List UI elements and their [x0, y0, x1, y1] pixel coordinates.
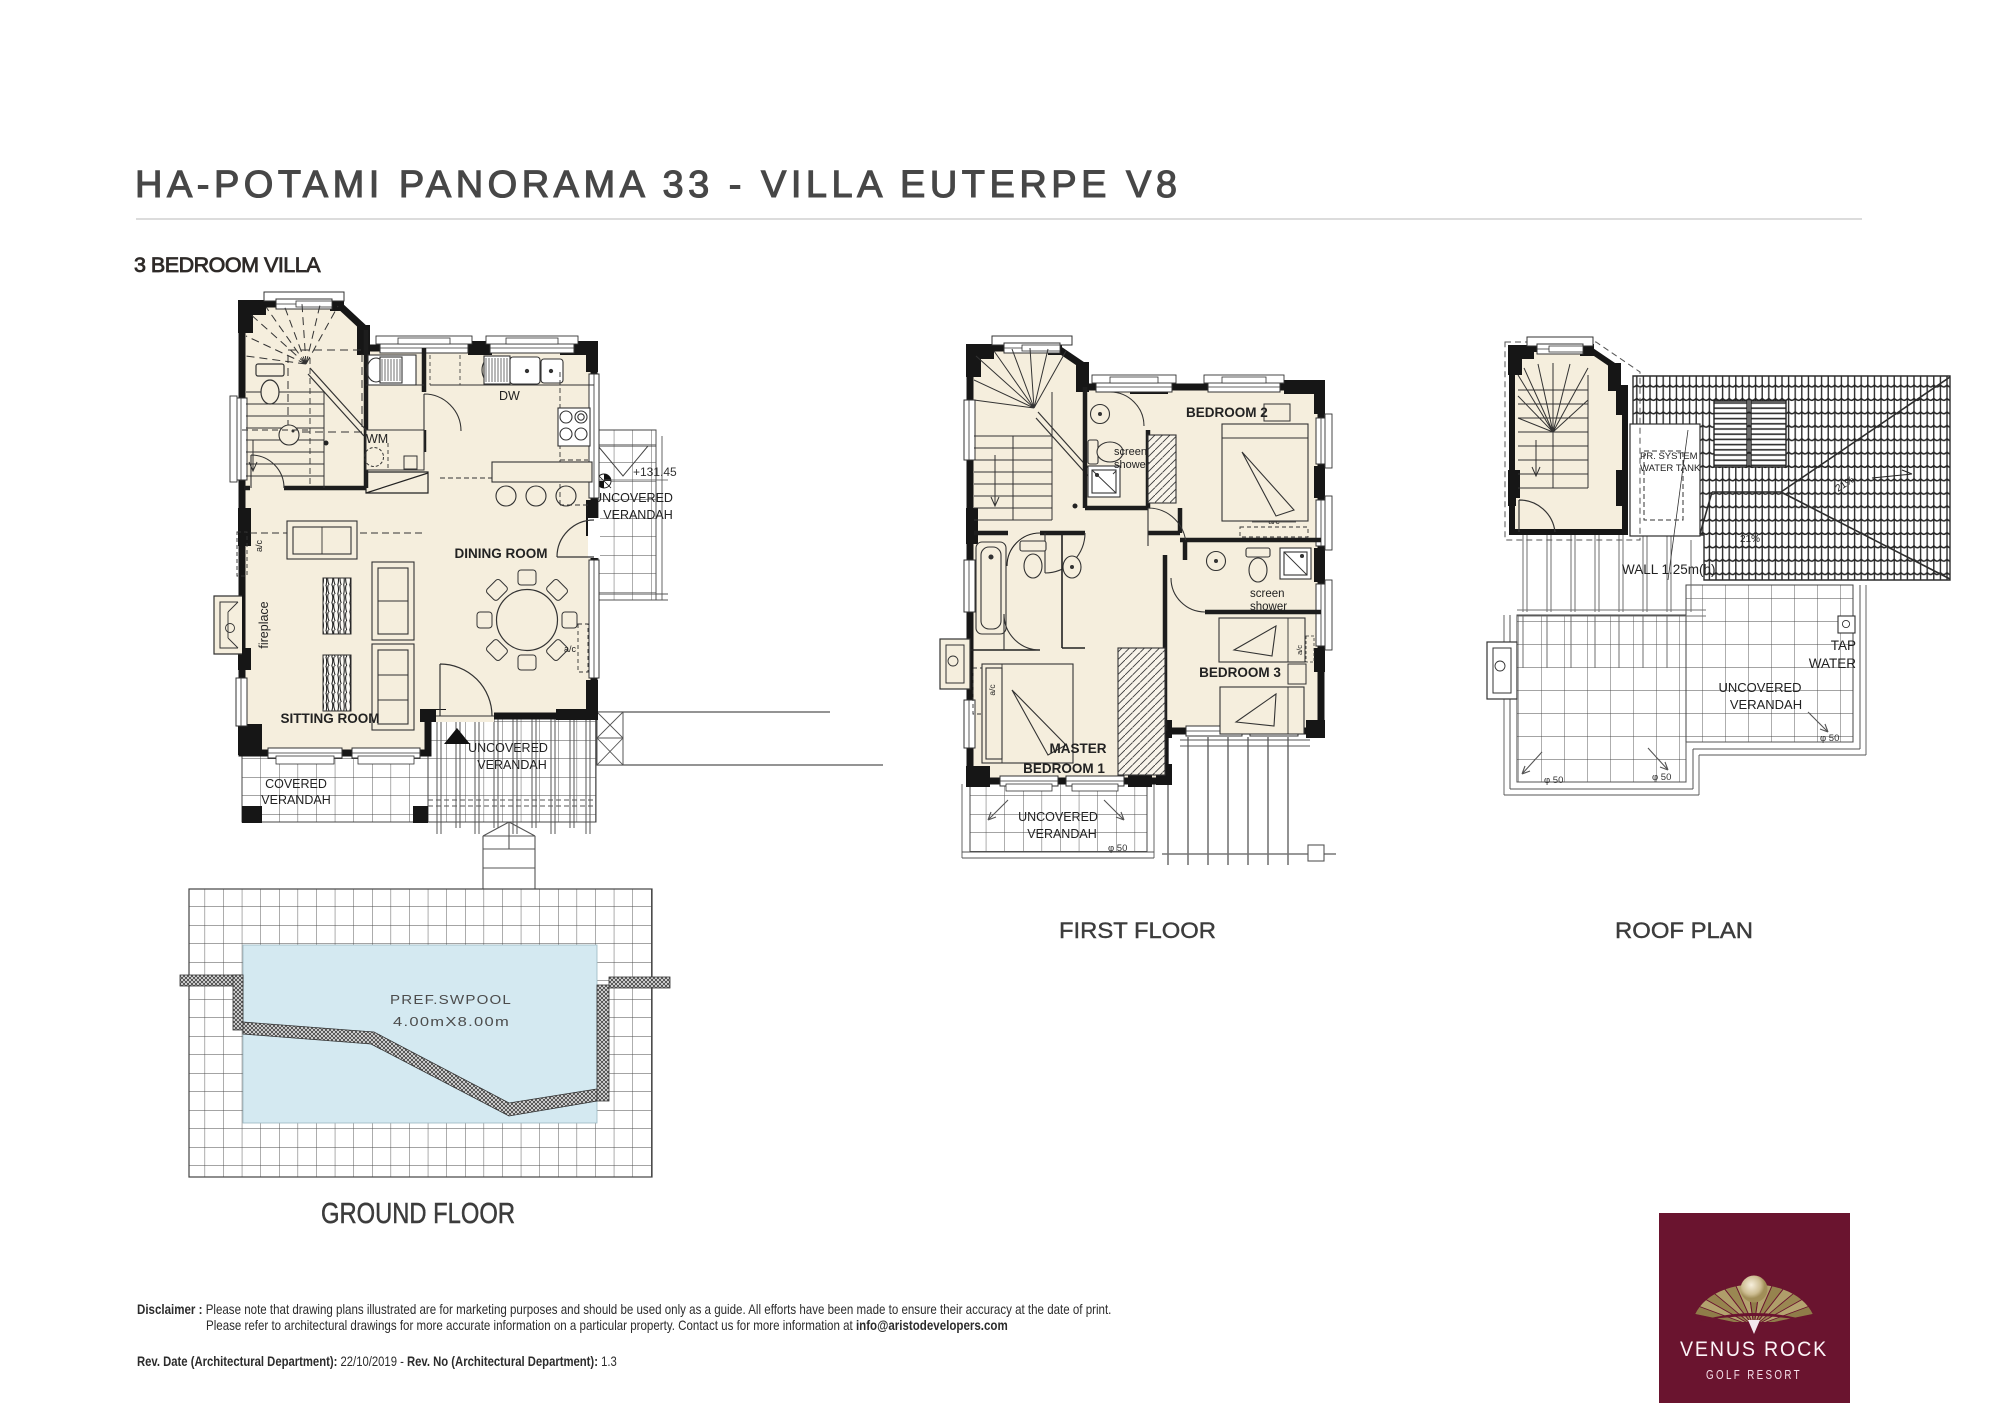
- svg-text:4.00mX8.00m: 4.00mX8.00m: [393, 1014, 510, 1029]
- svg-text:fireplace: fireplace: [257, 601, 271, 648]
- svg-text:a/c: a/c: [564, 644, 577, 654]
- svg-text:UNCOVERED: UNCOVERED: [1718, 680, 1801, 695]
- svg-text:DINING ROOM: DINING ROOM: [455, 546, 548, 561]
- svg-text:GOLF RESORT: GOLF RESORT: [1706, 1368, 1802, 1382]
- svg-text:VERANDAH: VERANDAH: [261, 793, 330, 807]
- svg-text:screen: screen: [1250, 588, 1285, 600]
- svg-text:BEDROOM 2: BEDROOM 2: [1186, 405, 1268, 420]
- svg-text:φ 50: φ 50: [1652, 772, 1671, 783]
- svg-text:PREF.SWPOOL: PREF.SWPOOL: [390, 992, 512, 1007]
- svg-text:WM: WM: [366, 432, 388, 446]
- svg-text:DW: DW: [499, 389, 520, 403]
- svg-text:ROOF PLAN: ROOF PLAN: [1615, 918, 1753, 943]
- svg-text:screen: screen: [1114, 446, 1147, 458]
- svg-text:a/c: a/c: [1295, 645, 1304, 655]
- svg-text:+131.45: +131.45: [633, 465, 677, 479]
- svg-text:WATER: WATER: [1809, 656, 1856, 671]
- svg-text:VERANDAH: VERANDAH: [1027, 827, 1096, 841]
- svg-text:BEDROOM 1: BEDROOM 1: [1023, 761, 1105, 776]
- svg-text:φ 50: φ 50: [1544, 775, 1563, 786]
- svg-text:VERANDAH: VERANDAH: [477, 758, 546, 772]
- svg-text:3 BEDROOM VILLA: 3 BEDROOM VILLA: [134, 253, 321, 277]
- svg-text:shower: shower: [1114, 459, 1150, 471]
- svg-text:UNCOVERED: UNCOVERED: [1018, 810, 1098, 824]
- svg-text:φ 50: φ 50: [1108, 843, 1127, 854]
- svg-text:UNCOVERED: UNCOVERED: [468, 741, 548, 755]
- svg-text:a/c: a/c: [254, 540, 264, 553]
- svg-text:21%: 21%: [1740, 534, 1760, 545]
- svg-text:VENUS ROCK: VENUS ROCK: [1680, 1337, 1828, 1361]
- svg-text:WATER TANK: WATER TANK: [1640, 463, 1701, 474]
- svg-text:Disclaimer : Please note that: Disclaimer : Please note that drawing pl…: [137, 1302, 1111, 1317]
- svg-text:VERANDAH: VERANDAH: [603, 508, 672, 522]
- svg-text:BEDROOM 3: BEDROOM 3: [1199, 665, 1281, 680]
- svg-text:GROUND FLOOR: GROUND FLOOR: [321, 1198, 515, 1230]
- svg-text:Please refer to architectural: Please refer to architectural drawings f…: [206, 1318, 1008, 1333]
- svg-text:UNCOVERED: UNCOVERED: [593, 491, 673, 505]
- svg-text:WALL 1.25m(h): WALL 1.25m(h): [1622, 562, 1716, 577]
- svg-text:shower: shower: [1250, 601, 1287, 613]
- svg-text:φ 50: φ 50: [1820, 733, 1839, 744]
- svg-text:SITTING ROOM: SITTING ROOM: [281, 711, 380, 726]
- svg-text:Rev. Date (Architectural Depar: Rev. Date (Architectural Department): 22…: [137, 1354, 617, 1369]
- svg-text:TAP: TAP: [1831, 638, 1856, 653]
- svg-text:HA-POTAMI PANORAMA 33 - VILLA: HA-POTAMI PANORAMA 33 - VILLA EUTERPE V8: [135, 164, 1182, 206]
- svg-text:a/c: a/c: [987, 684, 997, 696]
- svg-text:FIRST FLOOR: FIRST FLOOR: [1059, 918, 1216, 943]
- svg-text:PR. SYSTEM: PR. SYSTEM: [1640, 451, 1698, 462]
- svg-text:MASTER: MASTER: [1050, 741, 1107, 756]
- svg-text:COVERED: COVERED: [265, 777, 327, 791]
- svg-text:VERANDAH: VERANDAH: [1730, 697, 1802, 712]
